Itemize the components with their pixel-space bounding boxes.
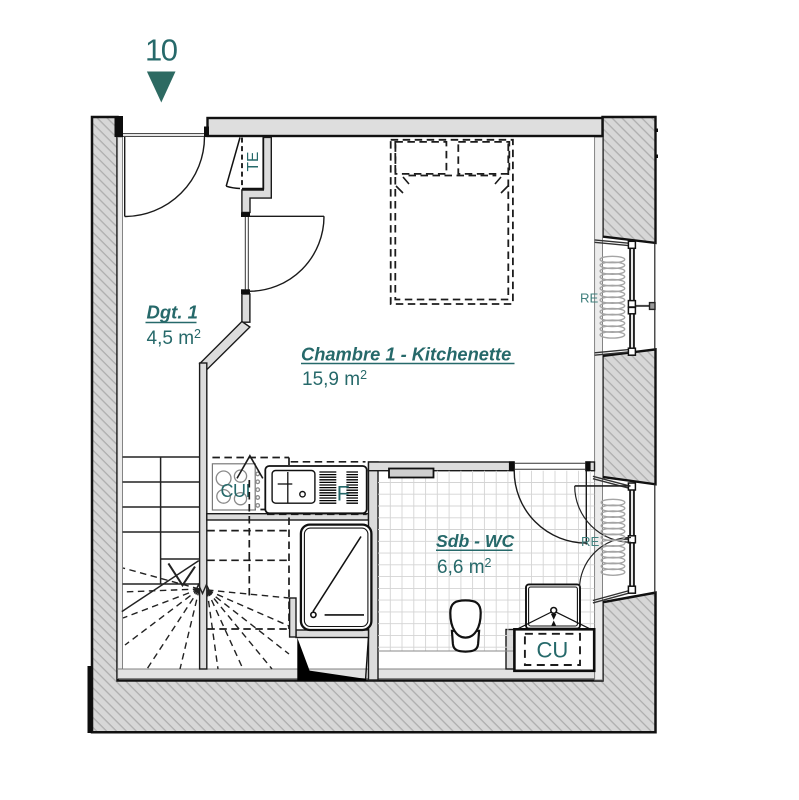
svg-text:4,5 m2: 4,5 m2 bbox=[147, 327, 202, 349]
svg-text:6,6 m2: 6,6 m2 bbox=[437, 556, 492, 578]
svg-text:10: 10 bbox=[145, 33, 178, 68]
svg-text:RE: RE bbox=[581, 534, 600, 549]
svg-text:Dgt. 1: Dgt. 1 bbox=[147, 302, 198, 323]
svg-text:CUI: CUI bbox=[221, 481, 251, 501]
svg-text:15,9 m2: 15,9 m2 bbox=[302, 368, 367, 390]
svg-text:CU: CU bbox=[537, 638, 569, 663]
svg-text:Sdb - WC: Sdb - WC bbox=[436, 531, 514, 551]
svg-text:Chambre 1 - Kitchenette: Chambre 1 - Kitchenette bbox=[301, 344, 511, 365]
svg-text:F: F bbox=[337, 483, 350, 506]
svg-text:TE: TE bbox=[245, 152, 262, 172]
svg-text:RE: RE bbox=[580, 291, 599, 306]
